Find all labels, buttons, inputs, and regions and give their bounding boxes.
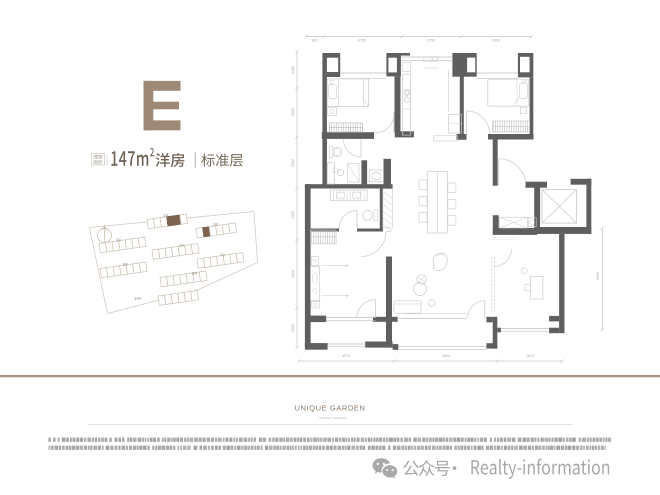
svg-text:1#: 1# <box>163 213 168 218</box>
svg-text:3300: 3300 <box>291 159 295 167</box>
svg-text:6#: 6# <box>192 271 197 276</box>
svg-text:5#: 5# <box>123 262 128 267</box>
svg-text:3970: 3970 <box>342 354 350 358</box>
svg-text:UNIQUE | GARDEN: UNIQUE | GARDEN <box>319 416 347 420</box>
svg-text:4#: 4# <box>179 243 184 248</box>
svg-text:4600: 4600 <box>442 354 450 358</box>
svg-text:3#: 3# <box>213 222 218 227</box>
svg-text:2750: 2750 <box>427 38 435 42</box>
svg-text:4200: 4200 <box>291 270 295 278</box>
svg-text:10#: 10# <box>134 296 142 301</box>
svg-text:800: 800 <box>312 38 318 42</box>
svg-text:2500: 2500 <box>291 324 295 332</box>
svg-text:2400: 2400 <box>291 66 295 74</box>
svg-text:3150: 3150 <box>596 272 600 280</box>
svg-text:2870: 2870 <box>526 354 534 358</box>
svg-text:2#: 2# <box>116 238 121 243</box>
svg-text:3300: 3300 <box>291 211 295 219</box>
svg-text:UNIQUE GARDEN: UNIQUE GARDEN <box>295 403 366 412</box>
svg-text:7#: 7# <box>220 253 225 258</box>
svg-text:3000: 3000 <box>291 108 295 116</box>
svg-text:3300: 3300 <box>492 38 500 42</box>
svg-text:4750: 4750 <box>358 38 366 42</box>
